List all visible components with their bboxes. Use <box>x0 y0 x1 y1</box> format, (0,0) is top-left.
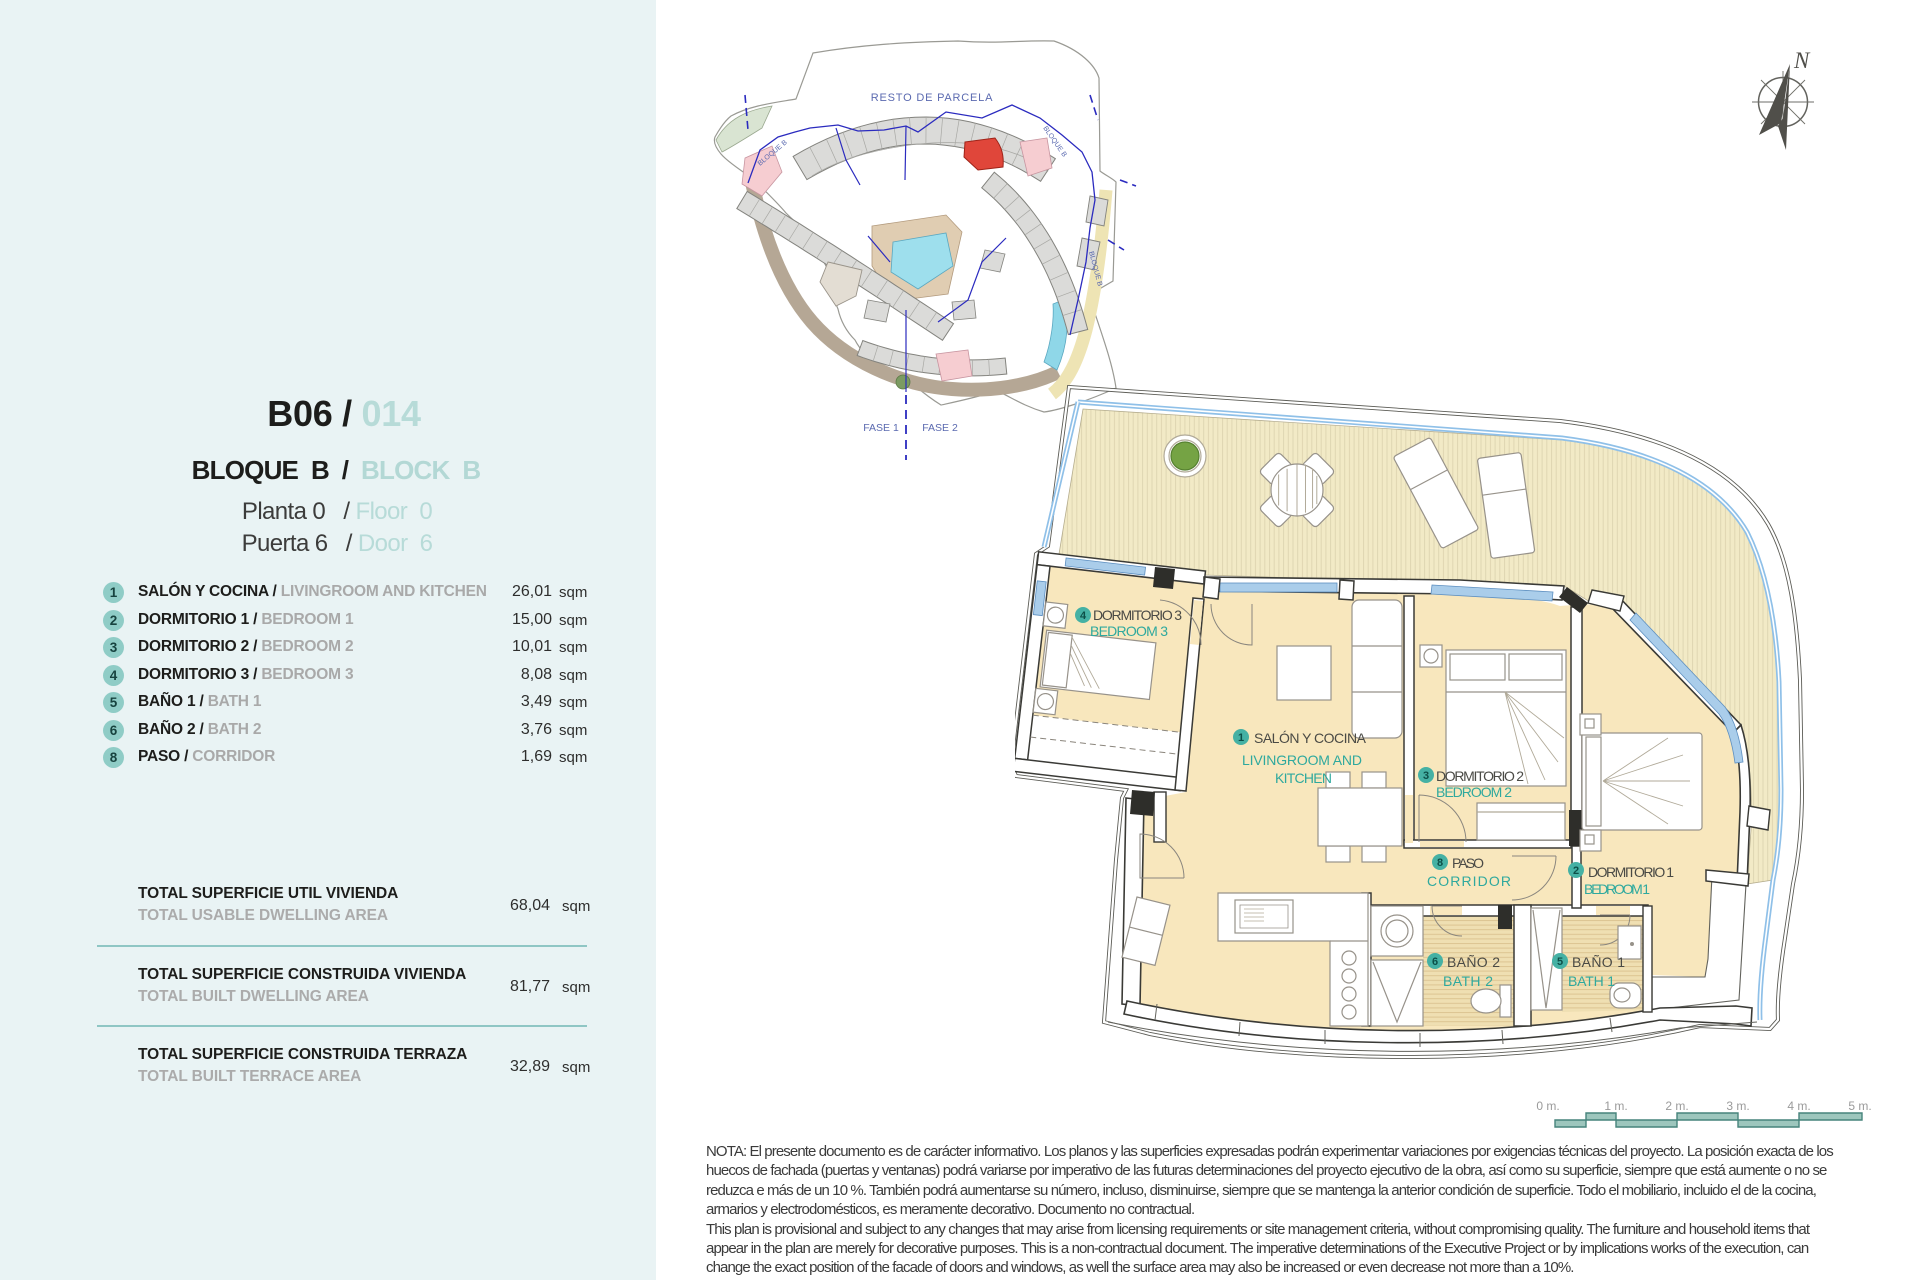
svg-text:BATH 1: BATH 1 <box>1568 973 1615 989</box>
svg-text:8: 8 <box>1437 857 1443 869</box>
svg-text:5: 5 <box>1557 956 1563 968</box>
svg-text:BEDROOM 3: BEDROOM 3 <box>1090 623 1168 639</box>
svg-text:6: 6 <box>1432 956 1438 968</box>
svg-text:BAÑO 1: BAÑO 1 <box>1572 954 1625 970</box>
svg-text:2: 2 <box>1573 865 1579 877</box>
svg-text:1 m.: 1 m. <box>1604 1099 1627 1113</box>
svg-text:LIVINGROOM AND: LIVINGROOM AND <box>1242 752 1362 768</box>
svg-text:DORMITORIO 2: DORMITORIO 2 <box>1436 768 1524 784</box>
svg-text:3 m.: 3 m. <box>1726 1099 1749 1113</box>
svg-text:DORMITORIO 3: DORMITORIO 3 <box>1093 607 1182 623</box>
svg-text:N: N <box>1793 48 1811 73</box>
svg-text:BEDROOM 1: BEDROOM 1 <box>1584 881 1650 897</box>
svg-text:0 m.: 0 m. <box>1536 1099 1559 1113</box>
svg-text:SALÓN Y COCINA: SALÓN Y COCINA <box>1254 730 1367 746</box>
svg-text:1: 1 <box>1238 732 1244 744</box>
svg-text:FASE 1: FASE 1 <box>863 422 899 434</box>
svg-text:RESTO DE PARCELA: RESTO DE PARCELA <box>871 92 993 104</box>
svg-text:5 m.: 5 m. <box>1848 1099 1871 1113</box>
svg-text:BATH 2: BATH 2 <box>1443 973 1493 989</box>
svg-text:3: 3 <box>1423 770 1429 782</box>
svg-text:CORRIDOR: CORRIDOR <box>1427 873 1511 889</box>
svg-text:KITCHEN: KITCHEN <box>1275 770 1332 786</box>
svg-text:BEDROOM 2: BEDROOM 2 <box>1436 784 1512 800</box>
svg-text:PASO: PASO <box>1452 855 1484 871</box>
svg-text:4 m.: 4 m. <box>1787 1099 1810 1113</box>
svg-text:4: 4 <box>1080 610 1087 622</box>
svg-text:DORMITORIO 1: DORMITORIO 1 <box>1588 864 1674 880</box>
svg-text:FASE 2: FASE 2 <box>922 422 958 434</box>
svg-text:2 m.: 2 m. <box>1665 1099 1688 1113</box>
svg-text:BAÑO 2: BAÑO 2 <box>1447 954 1500 970</box>
